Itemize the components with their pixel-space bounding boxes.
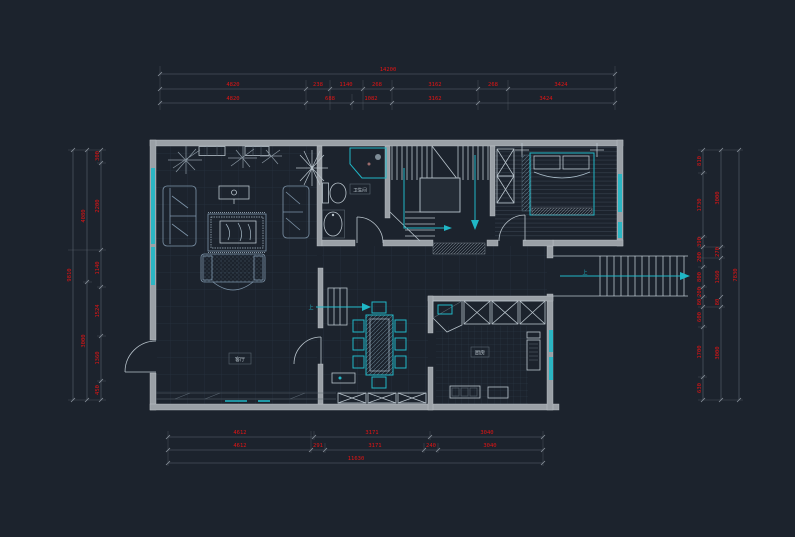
dim-label: 3424: [554, 82, 568, 88]
dim-label: 240: [426, 443, 436, 449]
dim-label: 4612: [233, 430, 246, 436]
dim-label: 3424: [539, 96, 553, 102]
dim-label: 3000: [715, 346, 721, 359]
dim-label: 80: [697, 299, 703, 306]
dim-label: 4080: [81, 209, 87, 222]
dim-label: 1140: [95, 261, 101, 274]
dim-label: 1730: [697, 198, 703, 211]
dim-label: 3040: [483, 443, 496, 449]
stair-up-hall-label: 上: [308, 304, 313, 311]
dim-label: 810: [697, 156, 703, 166]
stair-up-entry-label: 上: [582, 269, 587, 276]
dim-label: 300: [95, 151, 101, 161]
dim-label: 80: [715, 299, 721, 306]
dim-label: 3162: [428, 96, 441, 102]
kitchen-label: 厨房: [475, 350, 485, 357]
dim-label: 600: [697, 312, 703, 322]
dim-label: 268: [372, 82, 382, 88]
dim-label: 238: [313, 82, 323, 88]
cad-canvas[interactable]: 客厅: [0, 0, 795, 537]
dim-label: 1082: [364, 96, 377, 102]
dim-label: 2200: [95, 199, 101, 212]
dim-label: 1700: [697, 345, 703, 358]
dim-label: 3171: [368, 443, 381, 449]
dim-label: 4820: [226, 82, 239, 88]
dim-label: 3171: [365, 430, 378, 436]
dim-label: 1140: [339, 82, 352, 88]
dim-label: 3162: [428, 82, 441, 88]
dim-label: 3000: [715, 191, 721, 204]
dim-label: 200: [697, 252, 703, 262]
dining-table: [366, 315, 393, 375]
dim-label: 200: [697, 287, 703, 297]
dim-label: 14200: [380, 67, 397, 73]
dim-label: 390: [697, 237, 703, 247]
dim-label: 800: [697, 272, 703, 282]
dim-label: 7830: [733, 268, 739, 281]
bathroom-label: 卫生间: [353, 187, 367, 194]
dim-label: 270: [715, 247, 721, 257]
dim-label: 1524: [95, 304, 101, 318]
dim-label: 268: [488, 82, 498, 88]
dim-label: 4612: [233, 443, 246, 449]
dim-label: 630: [697, 383, 703, 393]
stair-landing: [420, 178, 460, 212]
dim-label: 9810: [67, 268, 73, 281]
dim-label: 3040: [480, 430, 493, 436]
dim-label: 11630: [348, 456, 365, 462]
doormat: [433, 243, 485, 254]
dim-label: 688: [325, 96, 335, 102]
dim-label: 3000: [81, 334, 87, 347]
dim-label: 291: [313, 443, 323, 449]
dim-label: 4820: [226, 96, 239, 102]
dim-label: 450: [95, 385, 101, 395]
living-room-label: 客厅: [235, 356, 245, 363]
plant-starburst-icon: [296, 150, 328, 186]
dim-label: 1360: [95, 351, 101, 364]
dim-label: 1360: [715, 270, 721, 283]
